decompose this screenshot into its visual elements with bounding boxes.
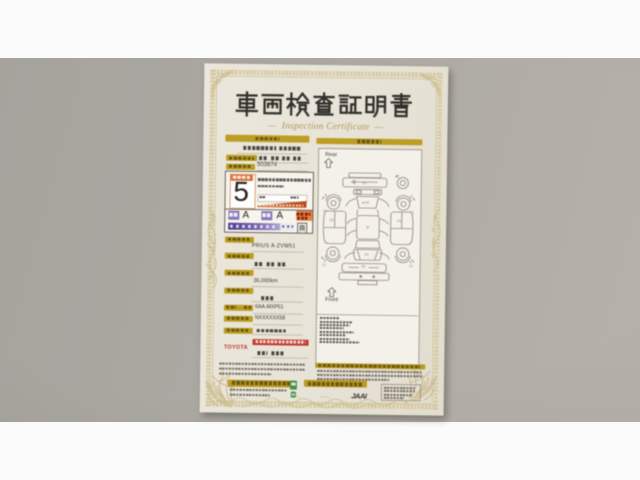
svg-text:D1: D1: [397, 219, 401, 223]
svg-text:D2: D2: [330, 218, 334, 222]
svg-text:C1: C1: [323, 208, 327, 212]
svg-text:B1: B1: [363, 181, 367, 185]
svg-text:C1: C1: [322, 262, 326, 266]
svg-text:C1: C1: [409, 264, 413, 268]
svg-text:A1: A1: [365, 200, 369, 204]
svg-text:A1: A1: [365, 252, 369, 256]
svg-text:C1: C1: [410, 210, 414, 214]
svg-text:B1: B1: [362, 264, 366, 268]
svg-text:W: W: [366, 225, 369, 229]
